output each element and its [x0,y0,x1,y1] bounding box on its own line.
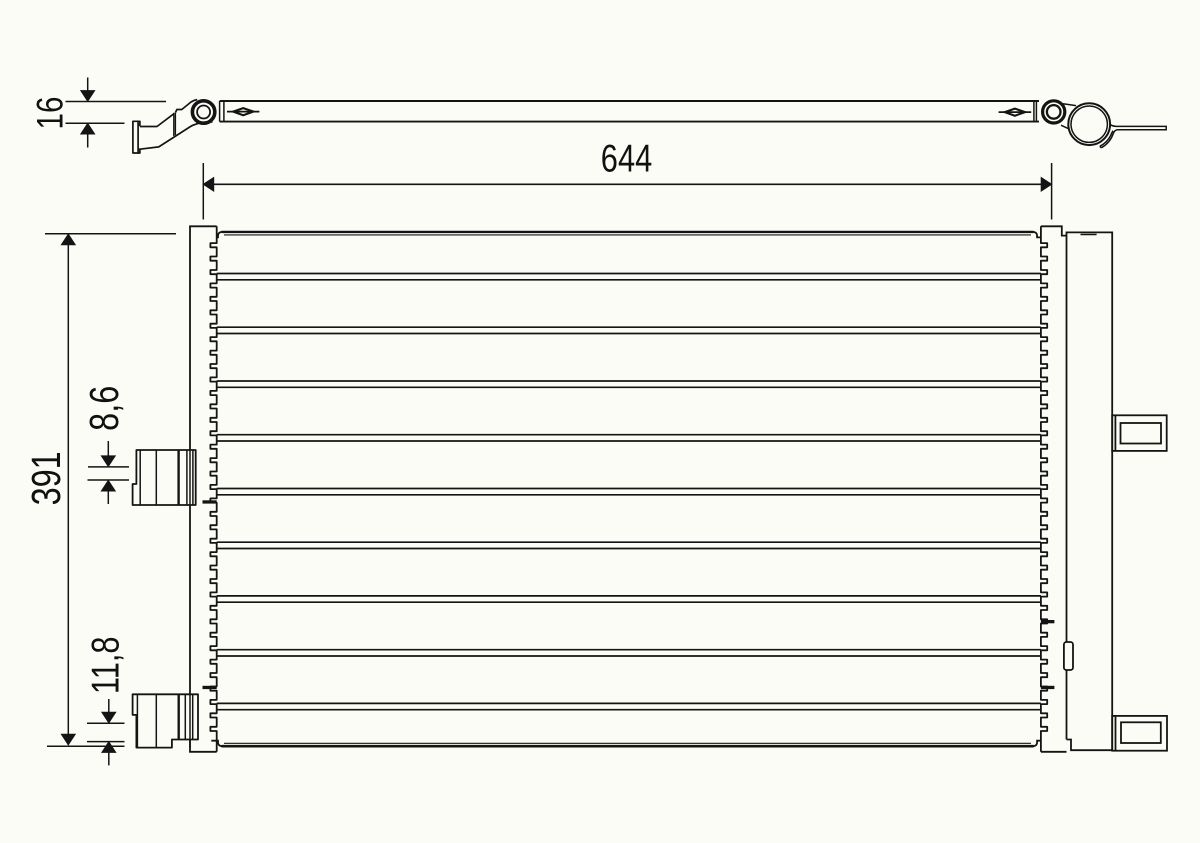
svg-text:16: 16 [30,97,71,130]
svg-text:8,6: 8,6 [82,386,127,431]
svg-text:11,8: 11,8 [84,636,127,694]
svg-text:391: 391 [24,451,69,505]
svg-text:644: 644 [601,137,652,180]
